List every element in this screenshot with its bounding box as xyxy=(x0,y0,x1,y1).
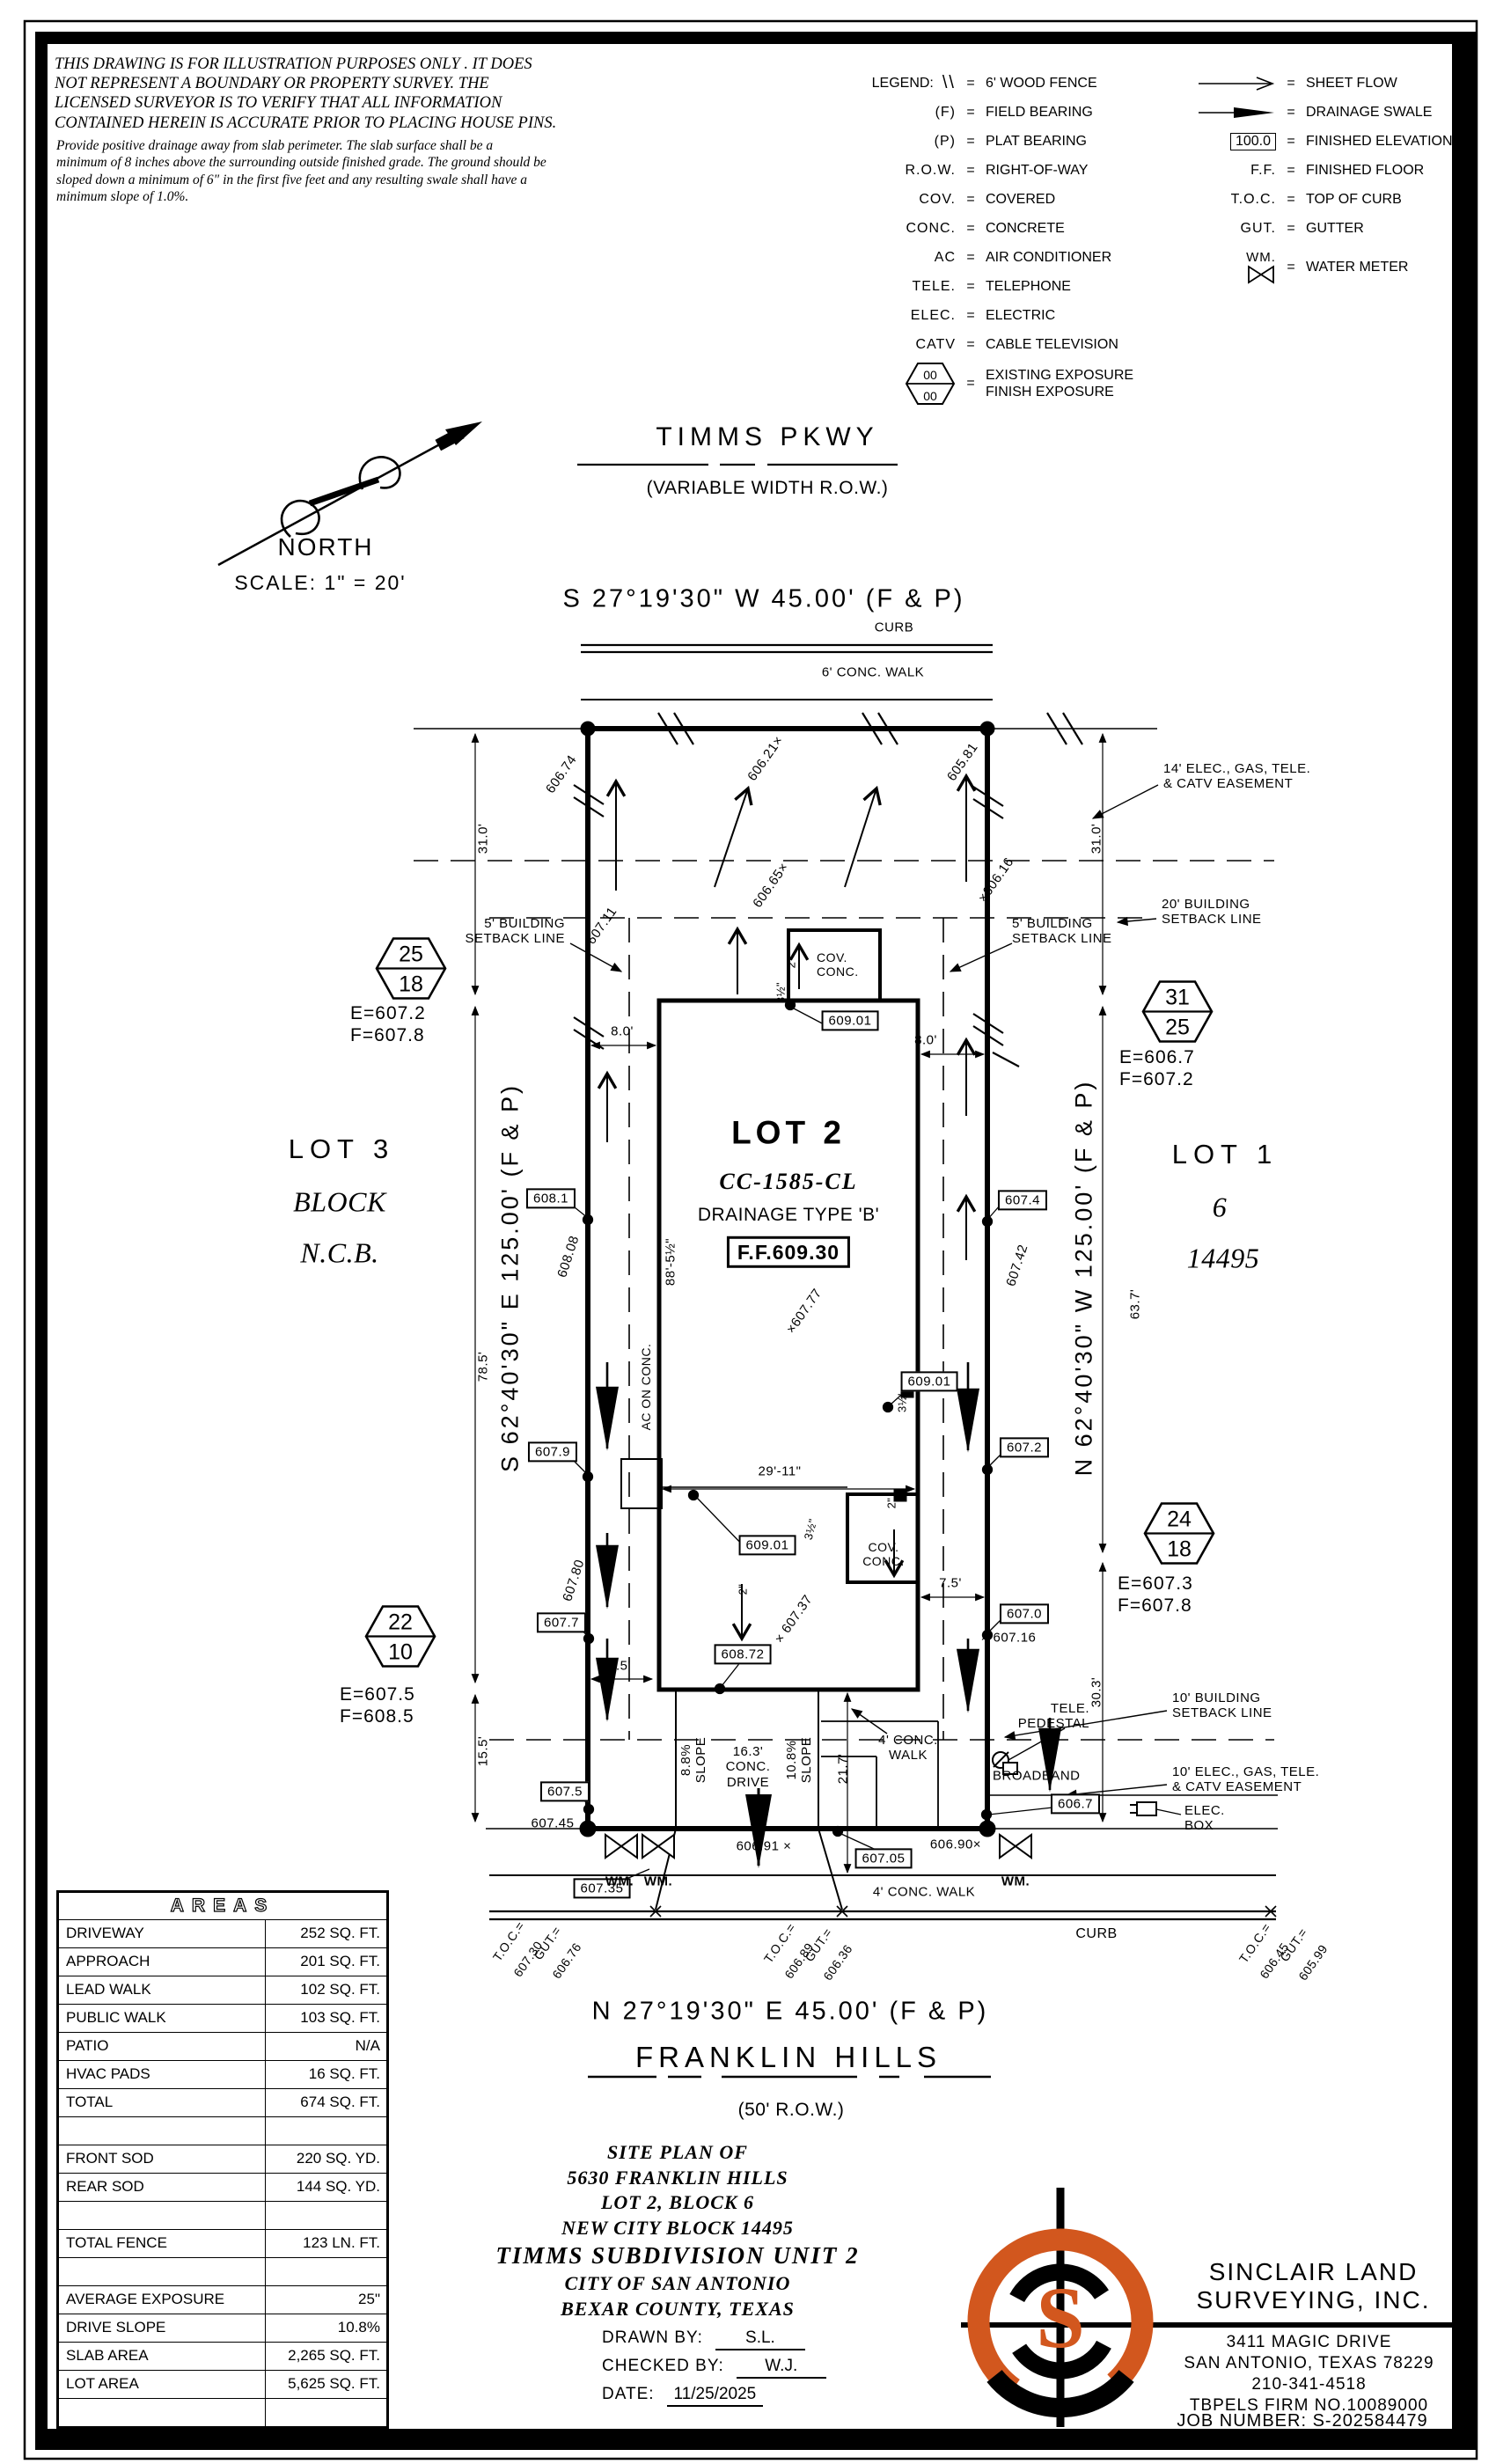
lot1-ncb: 14495 xyxy=(1187,1243,1260,1275)
svg-text:10: 10 xyxy=(388,1640,413,1665)
bearing-south: N 27°19'30" E 45.00' (F & P) xyxy=(592,1997,989,2026)
areas-row-value: 102 SQ. FT. xyxy=(265,1976,386,2004)
areas-row-value: N/A xyxy=(265,2033,386,2060)
areas-row: PATION/A xyxy=(59,2032,386,2060)
curb-label-top: CURB xyxy=(875,620,914,634)
covered-concrete-top: COV. CONC. xyxy=(817,950,859,979)
title-block-line: TIMMS SUBDIVISION UNIT 2 xyxy=(414,2240,942,2271)
spot-elevation: 607.80 xyxy=(560,1558,588,1603)
dimension-label: 88'-5½" xyxy=(663,1238,678,1286)
lot3-ncb: N.C.B. xyxy=(300,1237,378,1270)
areas-row-value: 103 SQ. FT. xyxy=(265,2005,386,2032)
firm-name-line1: SINCLAIR LAND xyxy=(1162,2258,1465,2286)
spot-elevation-boxed: 606.7 xyxy=(1051,1793,1100,1814)
spot-elevation: 607.11 xyxy=(583,904,620,947)
bearing-east: N 62°40'30" W 125.00' (F & P) xyxy=(1070,1080,1097,1477)
firm-city: SAN ANTONIO, TEXAS 78229 xyxy=(1153,2353,1465,2374)
spot-elevation: × 607.16 xyxy=(981,1630,1037,1645)
areas-row: FRONT SOD220 SQ. YD. xyxy=(59,2145,386,2173)
areas-row xyxy=(59,2116,386,2145)
setback-5-right-label: 5' BUILDING SETBACK LINE xyxy=(1012,916,1112,947)
areas-row-label: LOT AREA xyxy=(59,2371,265,2398)
spot-elevation: 606.74 xyxy=(543,752,580,796)
firm-name: SINCLAIR LAND SURVEYING, INC. xyxy=(1162,2258,1465,2314)
areas-row xyxy=(59,2398,386,2426)
dimension-label: 7.5' xyxy=(939,1575,962,1590)
dimension-label: 31.0' xyxy=(1089,824,1104,854)
walk-label-bottom: 4' CONC. WALK xyxy=(873,1884,975,1899)
dimension-label: 78.5' xyxy=(475,1352,490,1382)
areas-row: DRIVEWAY252 SQ. FT. xyxy=(59,1919,386,1947)
lot1-block: 6 xyxy=(1213,1192,1228,1224)
date-value: 11/25/2025 xyxy=(667,2385,764,2407)
water-meter-label: WM. xyxy=(644,1874,672,1888)
date-label: DATE: xyxy=(602,2385,655,2404)
areas-row-value xyxy=(265,2258,386,2285)
dimension-label: 2" xyxy=(786,957,799,969)
title-block-line: SITE PLAN OF xyxy=(414,2140,942,2166)
spot-elevation: 606.65× xyxy=(750,860,791,911)
dimension-label: 2" xyxy=(737,1584,751,1595)
areas-row-label xyxy=(59,2399,265,2426)
areas-table-title: AREAS xyxy=(59,1893,386,1919)
title-block-line: CITY OF SAN ANTONIO xyxy=(414,2271,942,2297)
areas-row: AVERAGE EXPOSURE25" xyxy=(59,2285,386,2314)
tele-pedestal-label: TELE. PEDESTAL xyxy=(1018,1701,1089,1732)
gut-value: 606.76 xyxy=(549,1940,583,1982)
areas-row xyxy=(59,2201,386,2229)
areas-row: DRIVE SLOPE10.8% xyxy=(59,2314,386,2342)
areas-row-label: PUBLIC WALK xyxy=(59,2005,265,2032)
areas-row: LOT AREA5,625 SQ. FT. xyxy=(59,2370,386,2398)
svg-text:22: 22 xyxy=(388,1610,413,1635)
spot-elevation-boxed: 607.05 xyxy=(855,1848,913,1868)
areas-row-value: 2,265 SQ. FT. xyxy=(265,2343,386,2370)
svg-text:31: 31 xyxy=(1165,986,1190,1010)
areas-row-label xyxy=(59,2258,265,2285)
areas-row: REAR SOD144 SQ. YD. xyxy=(59,2173,386,2201)
north-label: NORTH xyxy=(277,533,373,561)
lot2-drainage: DRAINAGE TYPE 'B' xyxy=(698,1205,879,1226)
areas-row-label: TOTAL FENCE xyxy=(59,2230,265,2257)
dimension-label: 30.3' xyxy=(1089,1677,1104,1708)
bearing-west: S 62°40'30" E 125.00' (F & P) xyxy=(496,1083,524,1472)
firm-address: 3411 MAGIC DRIVE SAN ANTONIO, TEXAS 7822… xyxy=(1153,2332,1465,2416)
spot-elevation: × 607.37 xyxy=(772,1592,816,1646)
areas-row xyxy=(59,2257,386,2285)
svg-text:25: 25 xyxy=(399,942,423,967)
spot-elevation-boxed: 608.1 xyxy=(526,1188,576,1208)
setback-10-label: 10' BUILDING SETBACK LINE xyxy=(1172,1690,1272,1721)
spot-elevation: ×607.77 xyxy=(783,1286,825,1337)
spot-elevation: 606.90× xyxy=(930,1837,981,1852)
easement-10-label: 10' ELEC., GAS, TELE. & CATV EASEMENT xyxy=(1172,1764,1319,1795)
title-block-line: BEXAR COUNTY, TEXAS xyxy=(414,2297,942,2322)
firm-phone: 210-341-4518 xyxy=(1153,2374,1465,2395)
lot2-finished-floor: F.F.609.30 xyxy=(727,1236,850,1268)
areas-row-label: DRIVEWAY xyxy=(59,1920,265,1947)
drawn-by-value: S.L. xyxy=(715,2328,805,2350)
gut-value: 606.36 xyxy=(820,1942,854,1984)
areas-row-value: 16 SQ. FT. xyxy=(265,2061,386,2088)
title-block-line: 5630 FRANKLIN HILLS xyxy=(414,2166,942,2191)
dimension-label: 3½" xyxy=(803,1517,821,1541)
areas-row: SLAB AREA2,265 SQ. FT. xyxy=(59,2342,386,2370)
setback-5-left-label: 5' BUILDING SETBACK LINE xyxy=(465,916,565,947)
spot-elevation-boxed: 609.01 xyxy=(901,1371,958,1391)
title-block-line: LOT 2, BLOCK 6 xyxy=(414,2190,942,2216)
areas-row-value: 5,625 SQ. FT. xyxy=(265,2371,386,2398)
drawn-by-label: DRAWN BY: xyxy=(602,2328,703,2348)
lot1-label: LOT 1 xyxy=(1172,1139,1279,1170)
firm-street: 3411 MAGIC DRIVE xyxy=(1153,2332,1465,2353)
street-bottom-row: (50' R.O.W.) xyxy=(738,2100,845,2121)
dimension-label: 29'-11" xyxy=(759,1463,802,1478)
spot-elevation: 606.21× xyxy=(744,733,786,784)
easement-14-label: 14' ELEC., GAS, TELE. & CATV EASEMENT xyxy=(1163,761,1310,792)
areas-row-value: 674 SQ. FT. xyxy=(265,2089,386,2116)
spot-elevation-boxed: 608.72 xyxy=(715,1644,772,1664)
logo-letter: S xyxy=(1036,2267,1085,2368)
spot-elevation-boxed: 609.01 xyxy=(822,1010,879,1030)
scale-label: SCALE: 1" = 20' xyxy=(234,571,406,594)
broadband-label: BROADBAND xyxy=(993,1768,1081,1783)
spot-elevation-boxed: 607.7 xyxy=(537,1612,586,1632)
areas-row-value: 252 SQ. FT. xyxy=(265,1920,386,1947)
exposure-marker-25-18-elevations: E=607.2 F=607.8 xyxy=(350,1002,426,1046)
areas-row-value xyxy=(265,2399,386,2426)
site-plan-sheet: THIS DRAWING IS FOR ILLUSTRATION PURPOSE… xyxy=(0,0,1496,2464)
setback-20-label: 20' BUILDING SETBACK LINE xyxy=(1162,897,1262,928)
spot-elevation: ×606.16 xyxy=(975,854,1016,906)
areas-row-label: HVAC PADS xyxy=(59,2061,265,2088)
firm-name-line2: SURVEYING, INC. xyxy=(1162,2286,1465,2314)
dimension-label: 7.5' xyxy=(608,1658,631,1673)
job-number: JOB NUMBER: S-202584479 xyxy=(1135,2411,1470,2431)
dimension-label: 3½" xyxy=(775,982,788,1003)
svg-text:18: 18 xyxy=(399,972,423,997)
areas-row-label xyxy=(59,2202,265,2229)
dimension-label: 2" xyxy=(886,1498,899,1509)
exposure-marker-24-18-elevations: E=607.3 F=607.8 xyxy=(1118,1573,1193,1617)
spot-elevation-boxed: 609.01 xyxy=(739,1535,796,1555)
dimension-label: 31.0' xyxy=(475,824,490,854)
exposure-marker-22-10-elevations: E=607.5 F=608.5 xyxy=(340,1683,415,1727)
drive-label: 16.3' CONC. DRIVE xyxy=(726,1744,771,1790)
exposure-marker-22-10: 2210 xyxy=(363,1604,437,1674)
spot-elevation: 606.91 × xyxy=(737,1838,792,1853)
areas-row-label: TOTAL xyxy=(59,2089,265,2116)
spot-elevation-boxed: 607.5 xyxy=(540,1781,590,1801)
exposure-marker-25-18: 2518 xyxy=(374,936,448,1006)
lot3-label: LOT 3 xyxy=(289,1133,395,1165)
lot2-title: LOT 2 xyxy=(731,1115,846,1153)
areas-row-value: 123 LN. FT. xyxy=(265,2230,386,2257)
areas-row-label: SLAB AREA xyxy=(59,2343,265,2370)
svg-text:18: 18 xyxy=(1167,1537,1192,1562)
areas-row: TOTAL FENCE123 LN. FT. xyxy=(59,2229,386,2257)
walk-label-house: 4' CONC. WALK xyxy=(878,1733,938,1764)
areas-row-label xyxy=(59,2117,265,2145)
areas-row-label: APPROACH xyxy=(59,1948,265,1976)
exposure-marker-24-18: 2418 xyxy=(1142,1501,1216,1571)
svg-text:24: 24 xyxy=(1167,1507,1192,1532)
areas-row-value: 10.8% xyxy=(265,2314,386,2342)
areas-table: AREAS DRIVEWAY252 SQ. FT.APPROACH201 SQ.… xyxy=(56,1890,389,2429)
water-meter-label: WM. xyxy=(1001,1874,1030,1888)
areas-row-value xyxy=(265,2202,386,2229)
bearing-north: S 27°19'30" W 45.00' (F & P) xyxy=(562,584,964,613)
areas-row-label: PATIO xyxy=(59,2033,265,2060)
spot-elevation: 608.08 xyxy=(554,1234,583,1280)
spot-elevation: 607.45 xyxy=(532,1815,575,1830)
areas-row-label: FRONT SOD xyxy=(59,2145,265,2173)
street-top-row: (VARIABLE WIDTH R.O.W.) xyxy=(647,478,889,499)
areas-row: TOTAL674 SQ. FT. xyxy=(59,2088,386,2116)
title-block: SITE PLAN OF5630 FRANKLIN HILLSLOT 2, BL… xyxy=(414,2140,942,2322)
spot-elevation-boxed: 607.0 xyxy=(1000,1603,1049,1624)
spot-elevation-boxed: 607.9 xyxy=(528,1441,577,1462)
dimension-label: 8.0' xyxy=(914,1032,937,1047)
areas-row-label: REAR SOD xyxy=(59,2174,265,2201)
gut-value: 605.99 xyxy=(1295,1942,1330,1984)
spot-elevation-boxed: 607.2 xyxy=(1000,1437,1049,1457)
areas-row-value: 25" xyxy=(265,2286,386,2314)
dimension-label: 21.7' xyxy=(835,1754,850,1785)
exposure-marker-31-25-elevations: E=606.7 F=607.2 xyxy=(1119,1046,1195,1090)
spot-elevation: 607.42 xyxy=(1003,1243,1031,1288)
lot2-cc-number: CC-1585-CL xyxy=(719,1169,857,1195)
areas-row-label: AVERAGE EXPOSURE xyxy=(59,2286,265,2314)
signature-block: DRAWN BY: S.L. CHECKED BY: W.J. DATE: 11… xyxy=(602,2328,826,2413)
elec-box-label: ELEC. BOX xyxy=(1184,1803,1225,1834)
checked-by-label: CHECKED BY: xyxy=(602,2357,724,2376)
water-meter-label: WM. xyxy=(605,1874,634,1888)
spot-elevation: 605.81 xyxy=(944,740,981,784)
street-top-name: TIMMS PKWY xyxy=(656,422,878,453)
dimension-label: 8.0' xyxy=(611,1023,634,1038)
spot-elevation-boxed: 607.4 xyxy=(998,1190,1047,1210)
areas-row-label: LEAD WALK xyxy=(59,1976,265,2004)
areas-row: HVAC PADS16 SQ. FT. xyxy=(59,2060,386,2088)
areas-row-label: DRIVE SLOPE xyxy=(59,2314,265,2342)
areas-row-value: 144 SQ. YD. xyxy=(265,2174,386,2201)
checked-by-value: W.J. xyxy=(737,2357,826,2379)
title-block-line: NEW CITY BLOCK 14495 xyxy=(414,2216,942,2241)
areas-row: LEAD WALK102 SQ. FT. xyxy=(59,1976,386,2004)
ac-pad-label: AC ON CONC. xyxy=(639,1344,653,1431)
lot3-block: BLOCK xyxy=(293,1186,386,1219)
areas-row-value: 220 SQ. YD. xyxy=(265,2145,386,2173)
areas-row-value xyxy=(265,2117,386,2145)
svg-text:25: 25 xyxy=(1165,1016,1190,1040)
areas-row: PUBLIC WALK103 SQ. FT. xyxy=(59,2004,386,2032)
dimension-label: 15.5' xyxy=(475,1736,490,1767)
covered-concrete-mid: COV. CONC. xyxy=(862,1540,905,1568)
areas-row: APPROACH201 SQ. FT. xyxy=(59,1947,386,1976)
street-bottom-name: FRANKLIN HILLS xyxy=(635,2041,942,2074)
slope-label-right: 10.8% SLOPE xyxy=(784,1737,815,1784)
exposure-marker-31-25: 3125 xyxy=(1140,979,1214,1049)
curb-label-bottom: CURB xyxy=(1075,1926,1117,1942)
dimension-label: 3½' xyxy=(897,1393,910,1412)
dimension-label: 63.7' xyxy=(1127,1289,1142,1320)
walk-label-top: 6' CONC. WALK xyxy=(822,664,924,679)
areas-row-value: 201 SQ. FT. xyxy=(265,1948,386,1976)
slope-label-left: 8.8% SLOPE xyxy=(678,1737,709,1784)
